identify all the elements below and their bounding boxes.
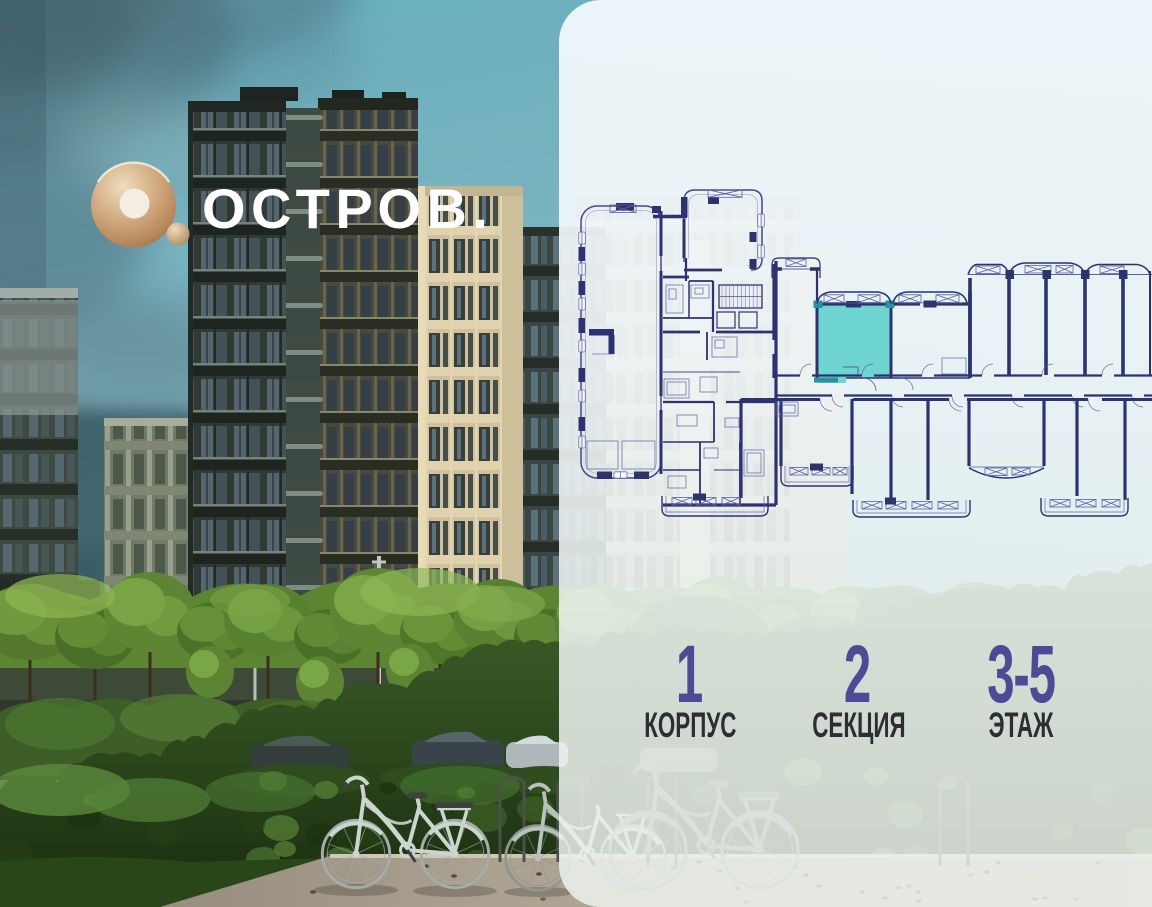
- svg-text:ОСТРОВ.: ОСТРОВ.: [202, 177, 493, 240]
